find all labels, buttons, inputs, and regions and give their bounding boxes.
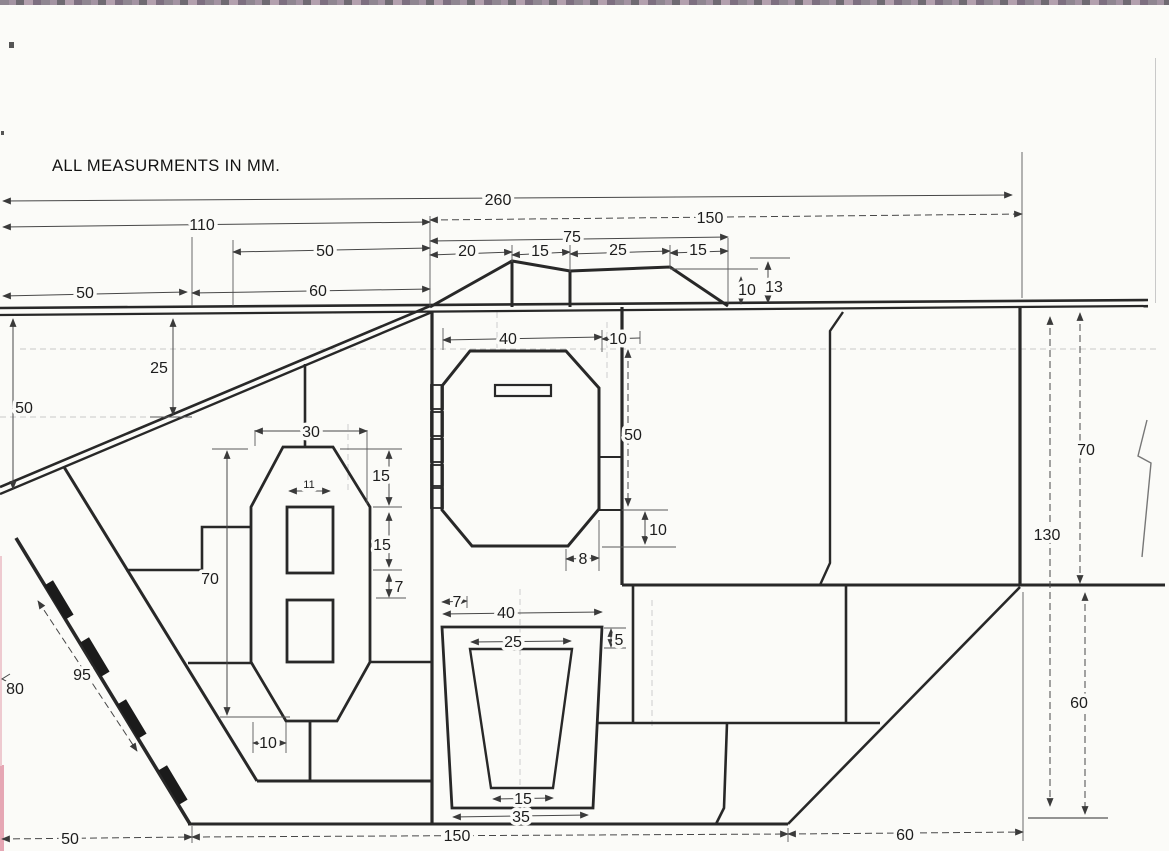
dim-label-cupola-flat: 25	[609, 242, 627, 259]
dim-label-grille-inner-bot: 15	[514, 791, 532, 808]
grille-outer	[442, 627, 602, 808]
front-plate-edge	[64, 467, 257, 781]
dim-label-glacis-len: 80	[6, 681, 24, 698]
hull-outline	[0, 261, 1165, 824]
dim-label-door-chamfer: 8	[579, 551, 588, 568]
dim-label-grille-outer-w: 40	[497, 605, 515, 622]
dim-label-door-w: 40	[499, 331, 517, 348]
weld-seam	[820, 312, 843, 585]
dim-bottom-front	[2, 837, 192, 839]
dim-label-cupola-total: 75	[563, 229, 581, 246]
dim-grille-outer-w	[443, 612, 602, 614]
dim-label-bottom-hull: 150	[444, 828, 471, 845]
seam-bottom	[716, 723, 727, 824]
step-bracket	[126, 527, 251, 570]
dim-door-w	[443, 337, 602, 340]
dim-label-right-total: 130	[1034, 527, 1061, 544]
dim-label-cupola-h: 13	[765, 279, 783, 296]
dim-label-cupola-peak: 15	[531, 243, 549, 260]
dim-label-cupola-rise: 20	[458, 243, 476, 260]
cupola-profile	[430, 261, 728, 307]
dim-label-door-gap-b: 10	[649, 522, 667, 539]
dim-label-small-seg: 7	[395, 579, 404, 596]
grille-inner	[470, 649, 572, 788]
dim-roof-rear	[430, 214, 1022, 220]
dim-label-upper-front: 110	[189, 217, 215, 234]
front-lower-slope	[16, 538, 190, 824]
drawing-note: ALL MEASURMENTS IN MM.	[52, 157, 280, 175]
dim-label-cupola-step-h: 10	[738, 282, 756, 299]
dim-label-overall: 260	[485, 192, 512, 209]
dim-upper-front	[3, 222, 430, 227]
dim-label-cupola-fall: 15	[689, 242, 707, 259]
dim-label-plate-w: 30	[302, 424, 320, 441]
dim-front-overhang	[3, 292, 187, 296]
rear-slope	[788, 587, 1020, 824]
cleat	[117, 699, 146, 738]
dim-label-door-h: 50	[624, 427, 642, 444]
dim-label-door-gap-r: 10	[609, 331, 627, 348]
break-mark	[1138, 420, 1151, 557]
dim-label-glacis-edge: 60	[309, 283, 327, 300]
technical-drawing: ALL MEASURMENTS IN MM. 260 110 50 60 50 …	[0, 0, 1169, 851]
glacis-edge-outer	[0, 306, 430, 487]
door-handle	[495, 385, 551, 396]
slope-cleats	[44, 580, 187, 804]
dim-label-front-height: 50	[15, 400, 33, 417]
dim-label-slot-w: 11	[303, 479, 314, 491]
dim-label-roof-rear: 150	[697, 210, 724, 227]
crew-door	[431, 351, 622, 546]
dim-label-grille-outer-bot: 35	[512, 809, 530, 826]
scanned-drawing-sheet: ALL MEASURMENTS IN MM. 260 110 50 60 50 …	[0, 0, 1169, 851]
extension-lines	[150, 152, 1023, 843]
dim-label-grille-inner-top: 25	[504, 634, 522, 651]
lower-grille	[442, 627, 602, 808]
dim-label-mid-seg: 15	[373, 537, 391, 554]
dim-label-foot-offset: 10	[259, 735, 277, 752]
dim-label-plate-h: 70	[201, 571, 219, 588]
door-octagon	[442, 351, 599, 546]
dim-label-right-lower: 60	[1070, 695, 1088, 712]
dim-label-right-upper: 70	[1077, 442, 1095, 459]
dim-label-lower-slope: 95	[73, 667, 91, 684]
dim-label-grille-inset: 5	[615, 632, 624, 649]
upper-opening	[287, 507, 333, 573]
dim-label-glacis-drop: 25	[150, 360, 168, 377]
dim-label-bottom-rear: 60	[896, 827, 914, 844]
lower-opening	[287, 600, 333, 662]
dim-bottom-hull	[192, 834, 788, 837]
dim-label-upper-seg: 15	[372, 468, 390, 485]
dim-label-grille-corner: 7	[453, 594, 462, 611]
dim-label-front-overhang: 50	[76, 285, 94, 302]
dimension-labels: ALL MEASURMENTS IN MM. 260 110 50 60 50 …	[6, 157, 1095, 848]
cleat	[44, 580, 73, 619]
dim-label-glacis-top: 50	[316, 243, 334, 260]
dim-label-bottom-front: 50	[61, 831, 79, 848]
dimension-lines	[2, 195, 1085, 839]
